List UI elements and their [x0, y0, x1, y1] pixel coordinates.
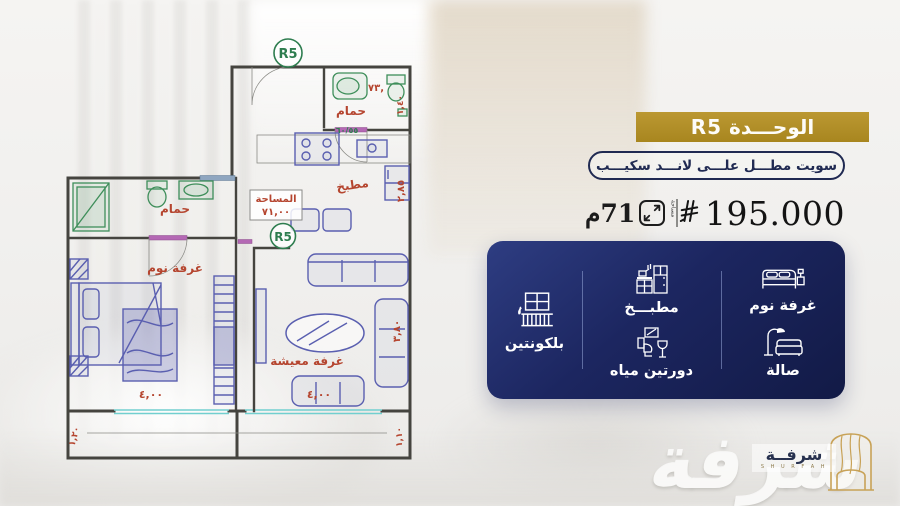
area-value: 71م	[585, 199, 635, 228]
brand-name-arabic: شرفــة	[756, 446, 832, 464]
plan-balcony-walls	[68, 410, 410, 458]
dim-balcony-right: ١,١٠	[395, 427, 405, 447]
plan-doors	[149, 67, 367, 276]
unit-title-banner: الوحـــدة R5	[636, 112, 869, 142]
label-living: غرفة معيشة	[270, 354, 344, 368]
bed-icon	[761, 261, 805, 295]
svg-text:R5: R5	[278, 47, 297, 62]
r5-badge-top: R5	[274, 39, 302, 67]
column-bed-hall: غرفة نوم صالة	[721, 241, 845, 399]
bathroom-icon	[633, 326, 669, 360]
feature-hall-label: صالة	[766, 363, 800, 379]
dim-bedroom-width: ٤,٠٠	[139, 388, 163, 401]
dim-bath-height: ١,٤٠	[396, 95, 406, 115]
price-group: 195.000	[679, 194, 845, 233]
feature-bathrooms: دورتين مياه	[610, 326, 693, 379]
price-value: 195.000	[705, 194, 845, 233]
feature-kitchen: مطبـــخ	[624, 261, 678, 316]
shower-and-toilet-left	[73, 181, 213, 231]
card-divider-right	[721, 271, 722, 369]
dim-stove: ٦٠/٥٥	[336, 126, 359, 135]
feature-hall: صالة	[762, 324, 804, 379]
label-bath-top: حمام	[336, 104, 366, 119]
feature-bedroom: غرفة نوم	[749, 261, 816, 314]
saudi-riyal-icon	[679, 198, 699, 228]
price-row: 71م مساحة 195.000	[585, 190, 845, 236]
expand-area-icon	[639, 200, 665, 226]
feature-bathrooms-label: دورتين مياه	[610, 363, 693, 379]
brand-name-latin: S H U R F A H	[756, 464, 832, 470]
svg-text:٧١,٠٠: ٧١,٠٠	[262, 207, 290, 218]
area-group: 71م مساحة	[585, 199, 675, 228]
label-kitchen: مطبخ	[335, 176, 369, 194]
hall-icon	[762, 324, 804, 360]
dim-living-width: ٤,٠٠	[307, 388, 331, 401]
r5-badge-mid: R5	[271, 224, 296, 249]
feature-kitchen-label: مطبـــخ	[624, 300, 678, 316]
card-divider-left	[582, 271, 583, 369]
column-kitchen-bath: مطبـــخ دورتين مياه	[582, 241, 721, 399]
feature-balcony: بلكونتين	[505, 289, 564, 352]
kitchen-icon	[634, 261, 670, 297]
features-card: بلكونتين مطبـــخ	[487, 241, 845, 399]
dim-balcony-left: ١,٢٠	[68, 426, 83, 448]
label-bath-left: حمام	[160, 202, 190, 217]
brand-name: شرفــة S H U R F A H	[752, 444, 836, 472]
flyer-canvas: حمام حمام مطبخ غرفة نوم غرفة معيشة ٤,٠٠ …	[0, 0, 900, 506]
column-balcony: بلكونتين	[487, 241, 582, 399]
feature-bedroom-label: غرفة نوم	[749, 298, 816, 314]
living-room-furniture	[256, 254, 408, 406]
balcony-icon	[513, 289, 557, 333]
svg-text:المساحة: المساحة	[255, 194, 296, 205]
area-word-vertical: مساحة	[669, 200, 675, 226]
dim-living-height: ٣,٨٠	[392, 320, 403, 342]
dim-kitchen-height: ٢,٨٥	[396, 180, 407, 202]
subtitle-pill: سويت مطـــل علـــى لانـــد سكيـــب	[588, 151, 845, 180]
price-divider	[676, 199, 678, 227]
area-box: المساحة ٧١,٠٠	[250, 190, 302, 220]
bedroom-furniture	[70, 259, 234, 404]
feature-balcony-label: بلكونتين	[505, 336, 564, 352]
svg-text:R5: R5	[274, 230, 292, 244]
label-bedroom: غرفة نوم	[147, 261, 203, 276]
floor-plan: حمام حمام مطبخ غرفة نوم غرفة معيشة ٤,٠٠ …	[57, 33, 422, 468]
dim-tub: ٧٣,	[368, 83, 384, 94]
